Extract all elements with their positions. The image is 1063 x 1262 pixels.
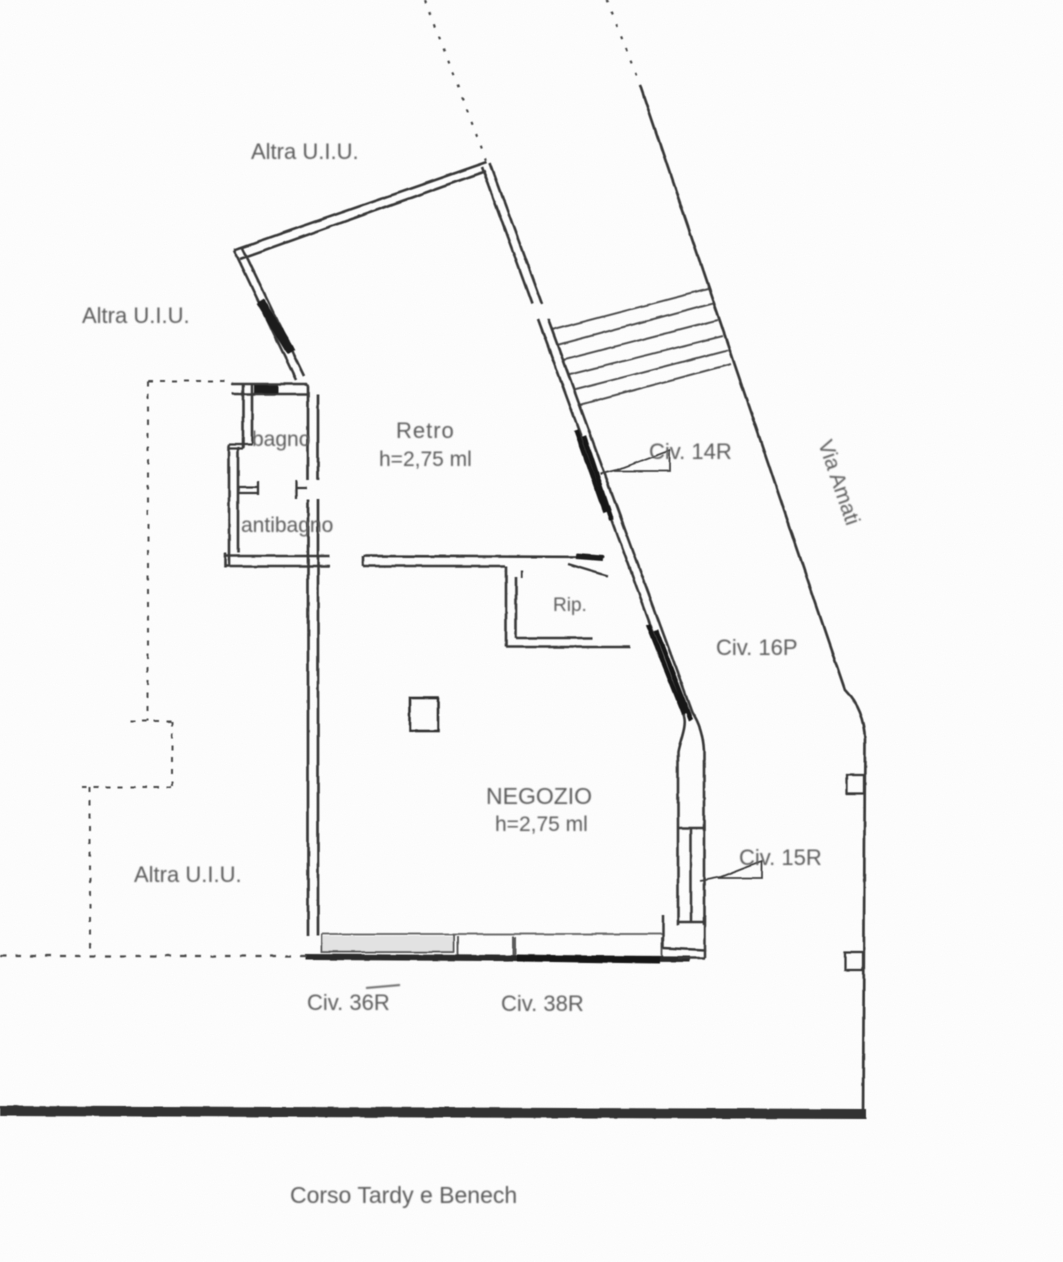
svg-text:Altra U.I.U.: Altra U.I.U.: [134, 862, 242, 887]
svg-text:Corso Tardy e Benech: Corso Tardy e Benech: [290, 1182, 517, 1208]
svg-text:Civ. 36R: Civ. 36R: [307, 990, 390, 1015]
svg-text:Civ. 16P: Civ. 16P: [716, 635, 798, 660]
svg-text:Rip.: Rip.: [553, 595, 587, 616]
svg-text:NEGOZIO: NEGOZIO: [486, 783, 592, 809]
svg-text:antibagno: antibagno: [241, 514, 333, 537]
svg-text:h=2,75 ml: h=2,75 ml: [495, 813, 588, 836]
svg-text:h=2,75 ml: h=2,75 ml: [379, 448, 472, 471]
svg-text:Civ. 38R: Civ. 38R: [501, 991, 584, 1016]
svg-text:Retro: Retro: [396, 418, 455, 443]
svg-text:Civ. 14R: Civ. 14R: [649, 439, 732, 464]
svg-text:Civ. 15R: Civ. 15R: [739, 845, 822, 870]
svg-text:bagno: bagno: [252, 428, 310, 451]
svg-text:Altra U.I.U.: Altra U.I.U.: [251, 139, 359, 164]
svg-text:Altra U.I.U.: Altra U.I.U.: [82, 303, 190, 328]
